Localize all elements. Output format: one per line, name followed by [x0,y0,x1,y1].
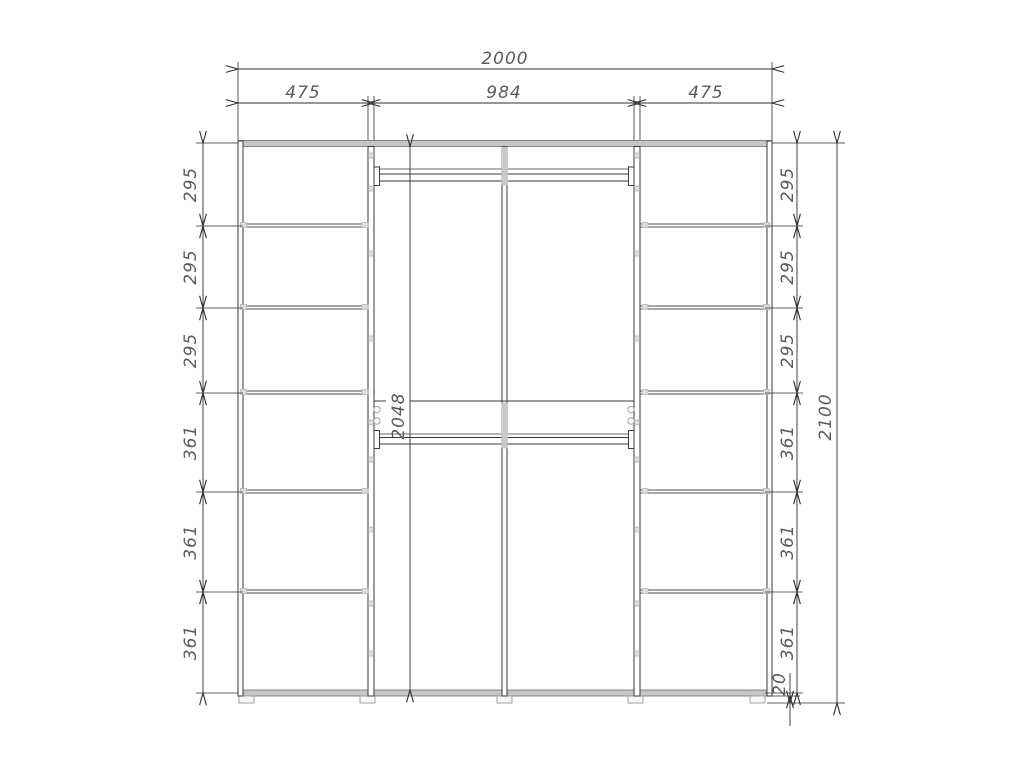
dim-label-right-4: 361 [778,524,798,559]
fitting [635,457,640,462]
fitting [241,305,247,310]
fitting [764,390,770,395]
fitting [362,305,368,310]
dim-width-left-section: 475 [238,83,368,103]
rail-bracket-left [374,167,380,186]
fitting [642,305,648,310]
dim-label-interior-height: 2048 [389,392,409,439]
fitting [369,527,374,532]
fitting [764,589,770,594]
shelf [640,391,767,394]
fitting [635,186,640,191]
shelf [243,306,368,309]
fitting [642,489,648,494]
dim-label-center-section-width: 984 [486,83,521,103]
fitting [369,336,374,341]
dim-label-left-3: 361 [181,425,201,460]
left-shelves [243,224,368,593]
fitting [369,251,374,256]
dim-label-feet-height: 20 [770,672,790,696]
dim-label-right-1: 295 [778,249,798,284]
fitting [241,223,247,228]
fitting [241,489,247,494]
rail-bracket-left [374,431,380,449]
fitting [241,589,247,594]
fitting [362,489,368,494]
fitting [764,305,770,310]
fitting [642,223,648,228]
right-shelves [640,224,767,593]
dim-chain-right: 295 295 295 361 361 361 [778,143,798,693]
fitting [369,601,374,606]
screw-hole [628,418,634,424]
shelf [640,224,767,227]
dim-label-left-1: 295 [181,249,201,284]
dim-label-left-5: 361 [181,625,201,660]
dim-label-right-2: 295 [778,333,798,368]
wardrobe-dimension-drawing: 2000 475 984 475 295 295 295 361 361 [0,0,1024,768]
dim-label-right-0: 295 [778,167,798,202]
shelf [243,224,368,227]
rail-bracket-right [629,167,635,186]
shelf [640,590,767,593]
fitting [369,186,374,191]
shelf [243,391,368,394]
dim-height-overall: 2100 [816,143,837,703]
fitting [635,336,640,341]
dim-label-right-section-width: 475 [688,83,723,103]
fitting [642,589,648,594]
dim-width-right-section: 475 [640,83,772,103]
fitting [635,651,640,656]
fitting [635,251,640,256]
fitting [635,601,640,606]
foot [750,696,765,703]
dim-label-left-0: 295 [181,167,201,202]
feet [239,696,765,703]
top-panel [238,141,772,147]
dim-label-left-4: 361 [181,524,201,559]
fitting [635,527,640,532]
dim-width-overall: 2000 [238,49,772,69]
fitting [635,153,640,158]
rail-divider-mount [502,147,508,185]
dim-label-left-section-width: 475 [285,83,320,103]
middle-hanging-rail [374,403,634,449]
screw-hole [374,418,380,424]
foot [628,696,643,703]
cabinet-body [238,141,772,704]
top-hanging-rail [374,147,634,186]
fitting [764,223,770,228]
shelf [640,306,767,309]
fitting [362,589,368,594]
fitting [642,390,648,395]
shelf [640,490,767,493]
fitting [362,390,368,395]
foot [239,696,254,703]
dim-feet-height: 20 [770,672,790,726]
fitting [369,153,374,158]
rail-divider-mount [502,403,508,448]
drawing-canvas: 2000 475 984 475 295 295 295 361 361 [0,0,1024,768]
fitting [241,390,247,395]
rail-bracket-right [629,431,635,449]
fitting [635,420,640,425]
dim-chain-left: 295 295 295 361 361 361 [181,143,203,693]
dim-height-interior: 2048 [389,147,410,691]
dim-label-right-3: 361 [778,425,798,460]
foot [360,696,375,703]
fitting [362,223,368,228]
dim-width-center-section: 984 [374,83,634,103]
fitting [369,420,374,425]
dim-label-left-2: 295 [181,333,201,368]
screw-hole [628,406,634,412]
extension-lines [196,62,845,703]
dim-label-right-5: 361 [778,625,798,660]
fitting [369,651,374,656]
screw-hole [374,406,380,412]
shelf [243,490,368,493]
fitting [764,489,770,494]
shelf [243,590,368,593]
foot [497,696,512,703]
dim-label-overall-height: 2100 [816,393,836,440]
dimensions: 2000 475 984 475 295 295 295 361 361 [181,49,845,726]
dim-label-overall-width: 2000 [481,49,528,69]
fitting [369,457,374,462]
